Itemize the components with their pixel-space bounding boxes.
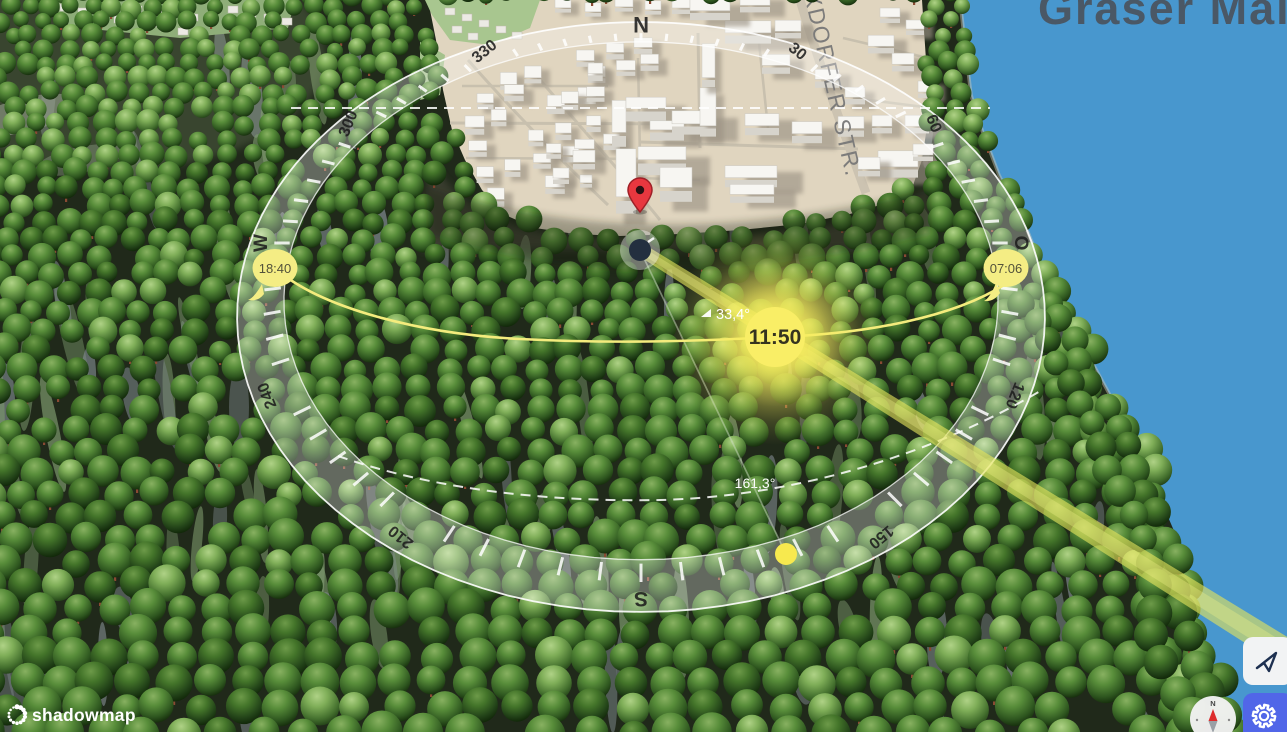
svg-text:11:50: 11:50	[749, 326, 802, 349]
svg-text:N: N	[1210, 699, 1215, 708]
svg-text:33,4°: 33,4°	[716, 307, 750, 323]
svg-text:S: S	[634, 587, 648, 610]
svg-text:07:06: 07:06	[990, 261, 1023, 276]
svg-text:W: W	[251, 234, 272, 252]
svg-text:shadowmap: shadowmap	[32, 705, 136, 725]
svg-text:Gräser Mal: Gräser Mal	[1038, 0, 1287, 34]
svg-text:18:40: 18:40	[259, 261, 292, 276]
svg-text:N: N	[633, 12, 649, 37]
svg-text:O: O	[1010, 236, 1031, 251]
